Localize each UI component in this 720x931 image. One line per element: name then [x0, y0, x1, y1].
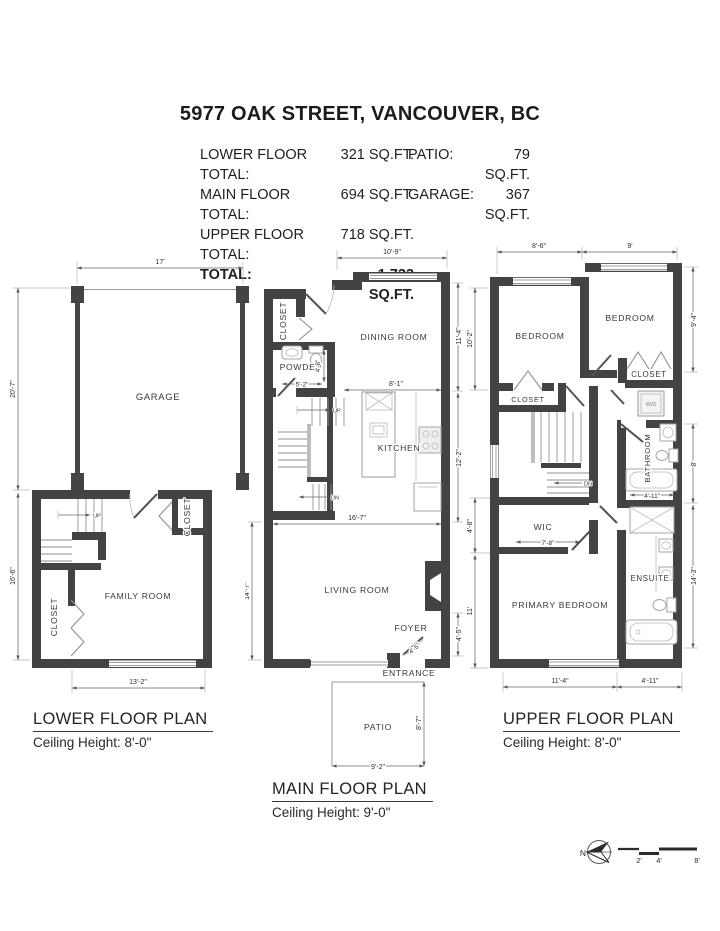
stairs-upper: DN — [531, 412, 592, 493]
stove-icon — [419, 427, 441, 453]
room-label-living: LIVING ROOM — [325, 585, 390, 595]
svg-text:8'-1": 8'-1" — [389, 381, 403, 388]
svg-text:10'-9": 10'-9" — [383, 249, 401, 256]
svg-text:14'-3": 14'-3" — [691, 567, 698, 585]
fridge-icon — [414, 483, 441, 511]
north-arrow-icon: N — [580, 841, 612, 864]
washer-dryer-icon: W/D — [638, 391, 664, 416]
stair-window — [490, 442, 499, 481]
dim-living-depth: 14'-7" — [245, 522, 262, 660]
bathtub-icon — [626, 620, 677, 644]
scale-tick-label: 8' — [694, 856, 700, 865]
bedroom-right-window — [598, 264, 670, 271]
summary-value: 367 SQ.FT. — [472, 185, 530, 225]
svg-text:W/D: W/D — [646, 402, 657, 408]
summary-label: LOWER FLOOR TOTAL: — [200, 145, 334, 185]
dim-garage-depth: 20'-7" — [10, 288, 70, 490]
svg-text:4'-8": 4'-8" — [467, 519, 474, 533]
room-label-closet: CLOSET — [631, 370, 666, 379]
bathroom: BATHROOM 4'-11" — [621, 424, 678, 500]
lower-plan-title: LOWER FLOOR PLAN — [33, 710, 213, 732]
bedroom-left-window — [510, 278, 574, 285]
closet-left: CLOSET — [49, 570, 84, 656]
living-window — [308, 660, 388, 667]
stair-dn-label: DN — [331, 496, 339, 502]
svg-text:14'-7": 14'-7" — [245, 582, 251, 600]
stairs-lower: UP — [41, 499, 106, 570]
svg-text:11'-4": 11'-4" — [551, 678, 569, 685]
dim-garage-width: 17' — [77, 259, 243, 284]
svg-text:9'-4": 9'-4" — [691, 313, 698, 327]
room-label-primary-bedroom: PRIMARY BEDROOM — [512, 600, 608, 610]
room-label-patio: PATIO — [364, 722, 392, 732]
sink-icon — [370, 423, 387, 437]
scale-bar: 2' 4' 8' — [618, 849, 700, 865]
dim-dining-width: 10'-9" — [337, 249, 447, 270]
dim-kitchen-width: 8'-1" — [344, 381, 441, 390]
room-label-ensuite: ENSUITE — [630, 574, 669, 583]
summary-label: MAIN FLOOR TOTAL: — [200, 185, 334, 225]
svg-text:16'-6": 16'-6" — [10, 567, 17, 585]
svg-text:10'-2": 10'-2" — [467, 330, 474, 348]
room-label-dining: DINING ROOM — [361, 332, 428, 342]
upper-plan-ceiling: Ceiling Height: 8'-0" — [503, 735, 680, 750]
scale-tick-label: 2' — [636, 856, 642, 865]
fireplace — [425, 561, 441, 611]
room-label-closet: CLOSET — [182, 498, 192, 537]
stair-up-label: UP — [93, 514, 101, 520]
svg-text:17': 17' — [155, 259, 164, 266]
garage-entry-door — [130, 494, 157, 518]
kitchen-island — [362, 392, 395, 477]
svg-text:8': 8' — [691, 461, 698, 466]
wic-door-leaf — [572, 531, 590, 550]
main-plan-title: MAIN FLOOR PLAN — [272, 780, 433, 802]
svg-text:11': 11' — [467, 607, 474, 616]
room-label-bathroom: BATHROOM — [643, 434, 652, 483]
room-label-closet: CLOSET — [49, 598, 59, 637]
svg-text:4'-8": 4'-8" — [315, 360, 322, 373]
compass-and-scale: N 2' 4' 8' — [563, 832, 720, 880]
lower-plan-ceiling: Ceiling Height: 8'-0" — [33, 735, 213, 750]
room-label-entrance: ENTRANCE — [383, 668, 436, 678]
svg-text:16'-7": 16'-7" — [348, 515, 366, 522]
summary-value: 694 SQ.FT. — [334, 185, 414, 225]
entry-door — [306, 285, 334, 314]
room-label-garage: GARAGE — [136, 391, 180, 402]
stair-up-label: UP — [333, 409, 341, 415]
dim-right-column: 9'-4" 8' 14'-3" — [684, 267, 698, 648]
patio: PATIO 9'-2" 8'-7" — [332, 682, 424, 771]
primary-window — [546, 660, 622, 667]
lower-plan-title-block: LOWER FLOOR PLAN Ceiling Height: 8'-0" — [33, 710, 213, 750]
area-summary-right: PATIO:79 SQ.FT. GARAGE:367 SQ.FT. — [408, 145, 530, 225]
sink-icon — [660, 424, 676, 441]
family-room-window — [106, 661, 199, 668]
svg-text:20'-7": 20'-7" — [10, 380, 17, 398]
hall-closet: CLOSET — [278, 302, 312, 341]
room-label-bedroom-right: BEDROOM — [605, 313, 654, 323]
svg-text:9'-2": 9'-2" — [371, 764, 385, 771]
powder-door-leaf — [278, 378, 295, 396]
bedroom-left-door-leaf — [566, 386, 584, 406]
room-label-bedroom-left: BEDROOM — [515, 331, 564, 341]
toilet-icon — [656, 449, 678, 462]
summary-value: 79 SQ.FT. — [472, 145, 530, 185]
laundry-nook: W/D — [611, 390, 664, 416]
dim-family-depth: 16'-6" — [10, 493, 30, 660]
room-label-kitchen: KITCHEN — [378, 443, 421, 453]
stair-dn-label: DN — [584, 482, 592, 488]
lower-floor-plan-drawing: 17' 20'-7" 16'-6" 13'-2" GARAGE — [0, 248, 260, 710]
upper-floor-plan-drawing: 8'-6" 9' 9'-4" 8' 14'-3" 10'-2" 4'-8" — [458, 235, 720, 703]
room-label-closet: CLOSET — [511, 395, 544, 404]
north-label: N — [580, 848, 586, 858]
entrance-door: 4'-5" — [403, 637, 423, 656]
stairs-main: UP DN — [278, 398, 344, 510]
svg-text:4'-11": 4'-11" — [641, 678, 659, 685]
room-label-foyer: FOYER — [394, 623, 427, 633]
ensuite: ENSUITE — [626, 507, 677, 644]
svg-text:5'-2": 5'-2" — [296, 382, 309, 389]
room-label-family-room: FAMILY ROOM — [105, 591, 172, 601]
primary-door-leaf — [600, 506, 617, 523]
garage-walls — [71, 286, 249, 490]
dim-bottom: 11'-4" 4'-11" — [503, 672, 682, 692]
walk-in-closet: WIC 7'-8" — [516, 522, 590, 550]
sink-icon — [282, 346, 302, 359]
summary-label: GARAGE: — [408, 185, 472, 225]
scale-tick-label: 4' — [656, 856, 662, 865]
closet-right: CLOSET — [159, 498, 203, 537]
svg-text:9': 9' — [627, 243, 632, 250]
room-label-wic: WIC — [534, 522, 553, 532]
main-plan-ceiling: Ceiling Height: 9'-0" — [272, 805, 433, 820]
svg-text:7'-8": 7'-8" — [542, 540, 555, 547]
summary-label: PATIO: — [408, 145, 472, 185]
svg-text:4'-11": 4'-11" — [644, 493, 660, 500]
dishwasher-icon — [366, 393, 392, 410]
kitchen-area: KITCHEN — [362, 392, 441, 511]
room-label-closet: CLOSET — [278, 302, 288, 341]
svg-text:13'-2": 13'-2" — [129, 679, 147, 686]
svg-text:4'-5": 4'-5" — [408, 642, 422, 656]
dim-family-width: 13'-2" — [72, 670, 205, 693]
main-plan-title-block: MAIN FLOOR PLAN Ceiling Height: 9'-0" — [272, 780, 433, 820]
upper-plan-title-block: UPPER FLOOR PLAN Ceiling Height: 8'-0" — [503, 710, 680, 750]
svg-text:8'-7": 8'-7" — [416, 716, 423, 730]
dining-window — [366, 274, 440, 281]
svg-text:8'-6": 8'-6" — [532, 243, 546, 250]
toilet-icon — [653, 598, 676, 612]
sink-icon — [659, 539, 673, 552]
shower-icon — [630, 507, 674, 533]
floor-plan-sheet: 5977 OAK STREET, VANCOUVER, BC LOWER FLO… — [0, 0, 720, 931]
page-title: 5977 OAK STREET, VANCOUVER, BC — [0, 103, 720, 126]
summary-value: 321 SQ.FT. — [334, 145, 414, 185]
upper-plan-title: UPPER FLOOR PLAN — [503, 710, 680, 732]
main-floor-plan-drawing: 10'-9" 11'-4" 12'-2" 4'-5" 14'-7" 16'-7"… — [245, 245, 480, 773]
